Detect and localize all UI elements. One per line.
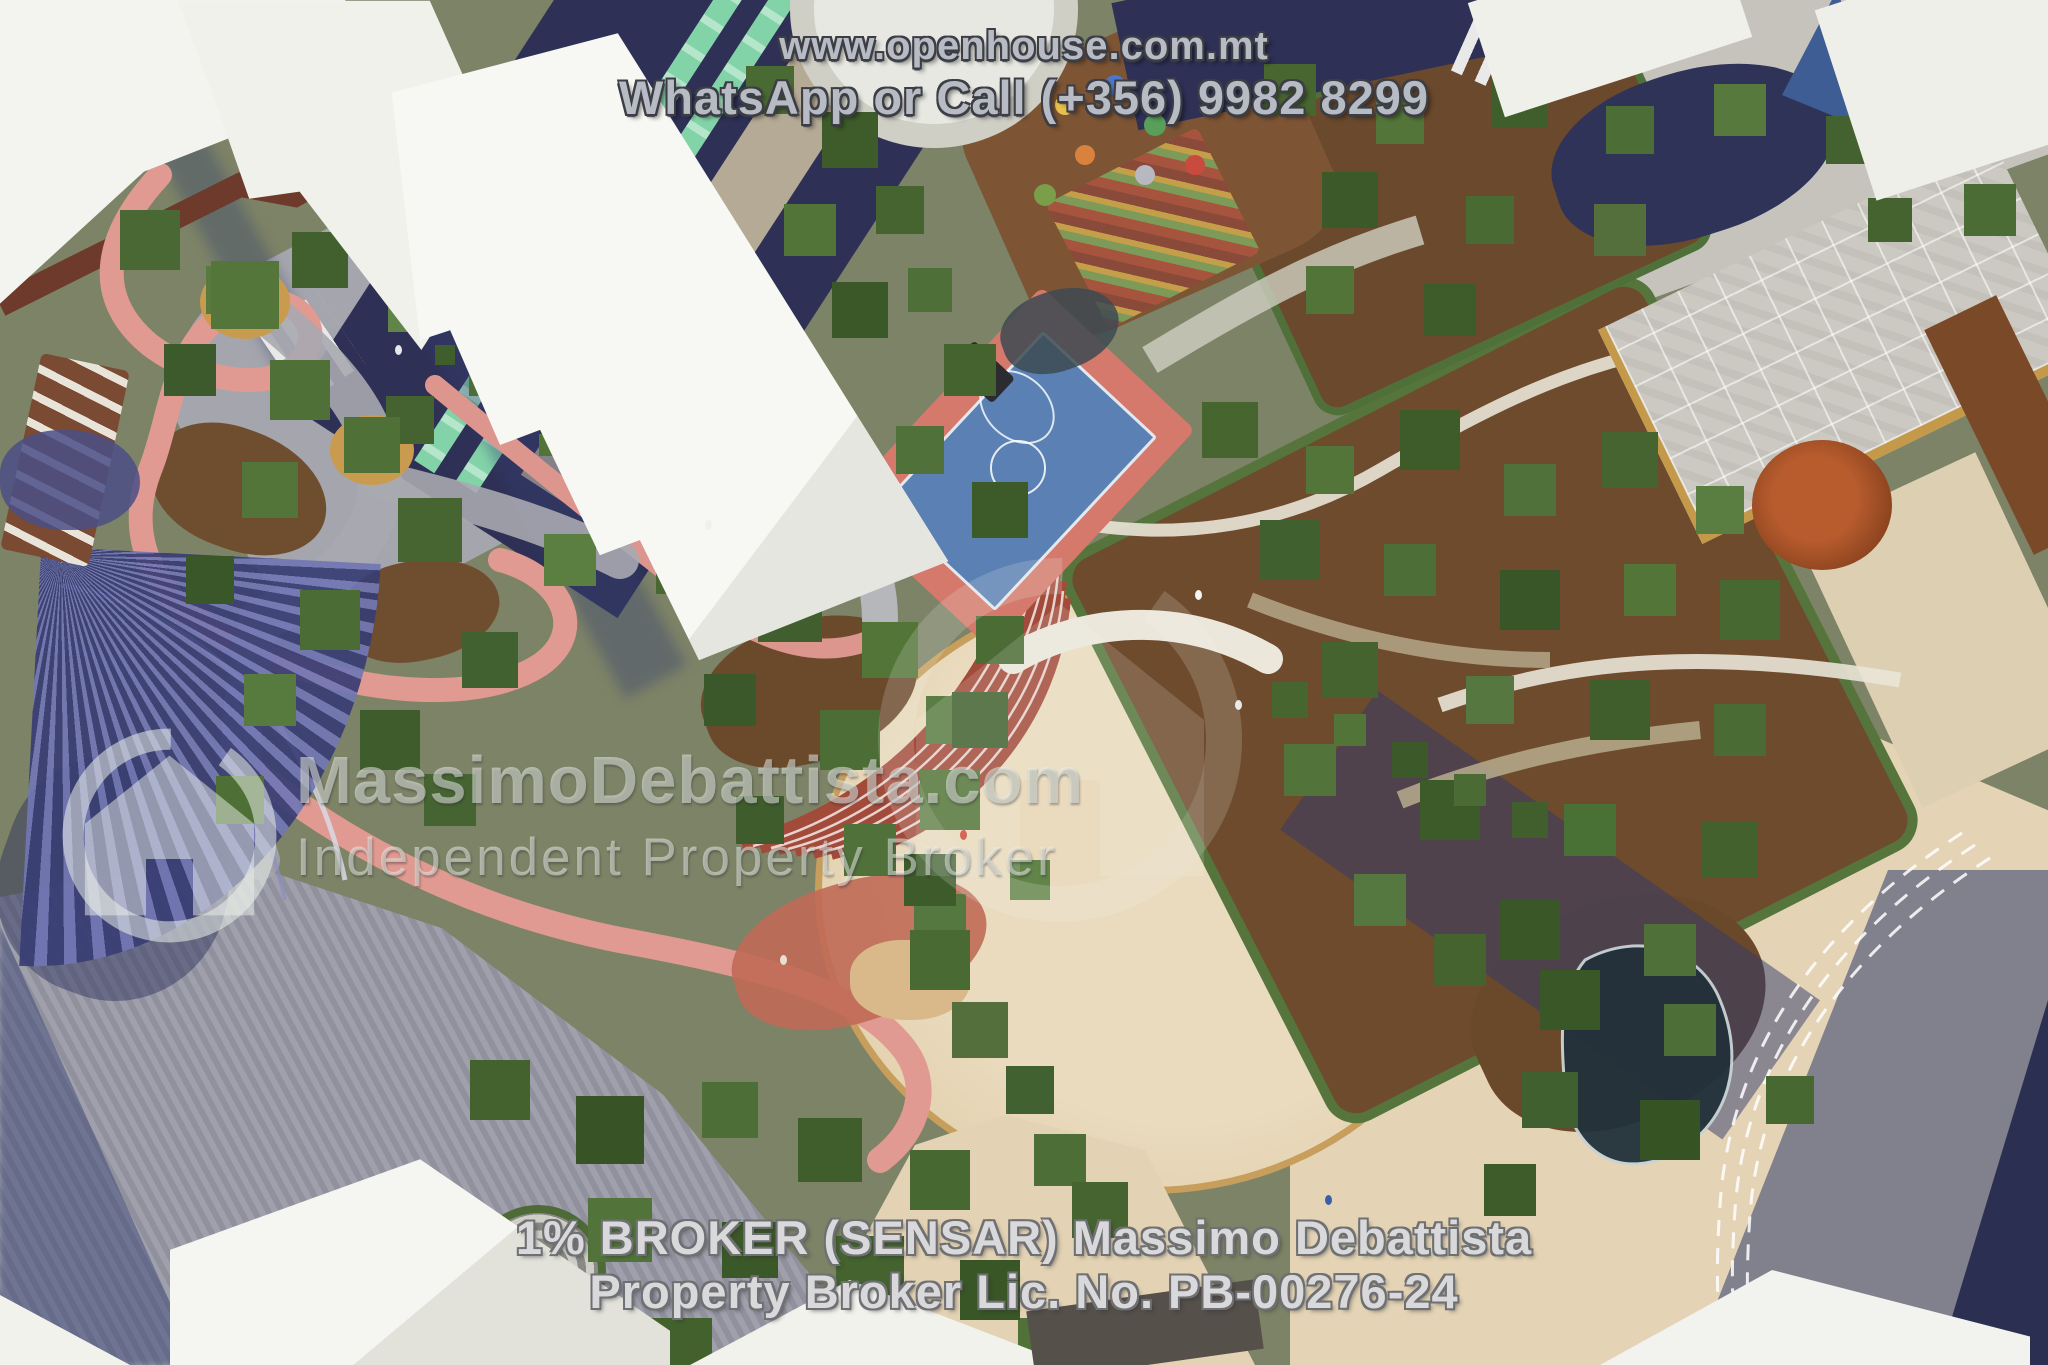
broker-logo-icon xyxy=(52,718,287,953)
watermark-text-block: MassimoDebattista.com Independent Proper… xyxy=(296,742,1084,888)
round-planter-2 xyxy=(200,265,290,339)
watermark-tagline: Independent Property Broker xyxy=(296,827,1084,888)
pond-left xyxy=(0,430,140,530)
terracotta-planter xyxy=(1752,440,1892,570)
broker-line-2: Property Broker Lic. No. PB-00276-24 xyxy=(0,1264,2048,1319)
broker-line-1: 1% BROKER (SENSAR) Massimo Debattista xyxy=(0,1210,2048,1265)
garden-path-right-1 xyxy=(1400,730,1700,800)
garden-path-right-2 xyxy=(1250,600,1550,660)
website-url: www.openhouse.com.mt xyxy=(0,24,2048,69)
white-walkway-right-2 xyxy=(1440,661,1900,705)
aerial-render-scene: MassimoDebattista.com Independent Proper… xyxy=(0,0,2048,1365)
pond-bottom-right xyxy=(1562,946,1731,1164)
contact-line: WhatsApp or Call (+356) 9982 8299 xyxy=(0,70,2048,125)
lower-play-sand xyxy=(850,940,970,1020)
watermark-brand: MassimoDebattista.com xyxy=(296,742,1084,819)
round-planter xyxy=(330,415,414,485)
